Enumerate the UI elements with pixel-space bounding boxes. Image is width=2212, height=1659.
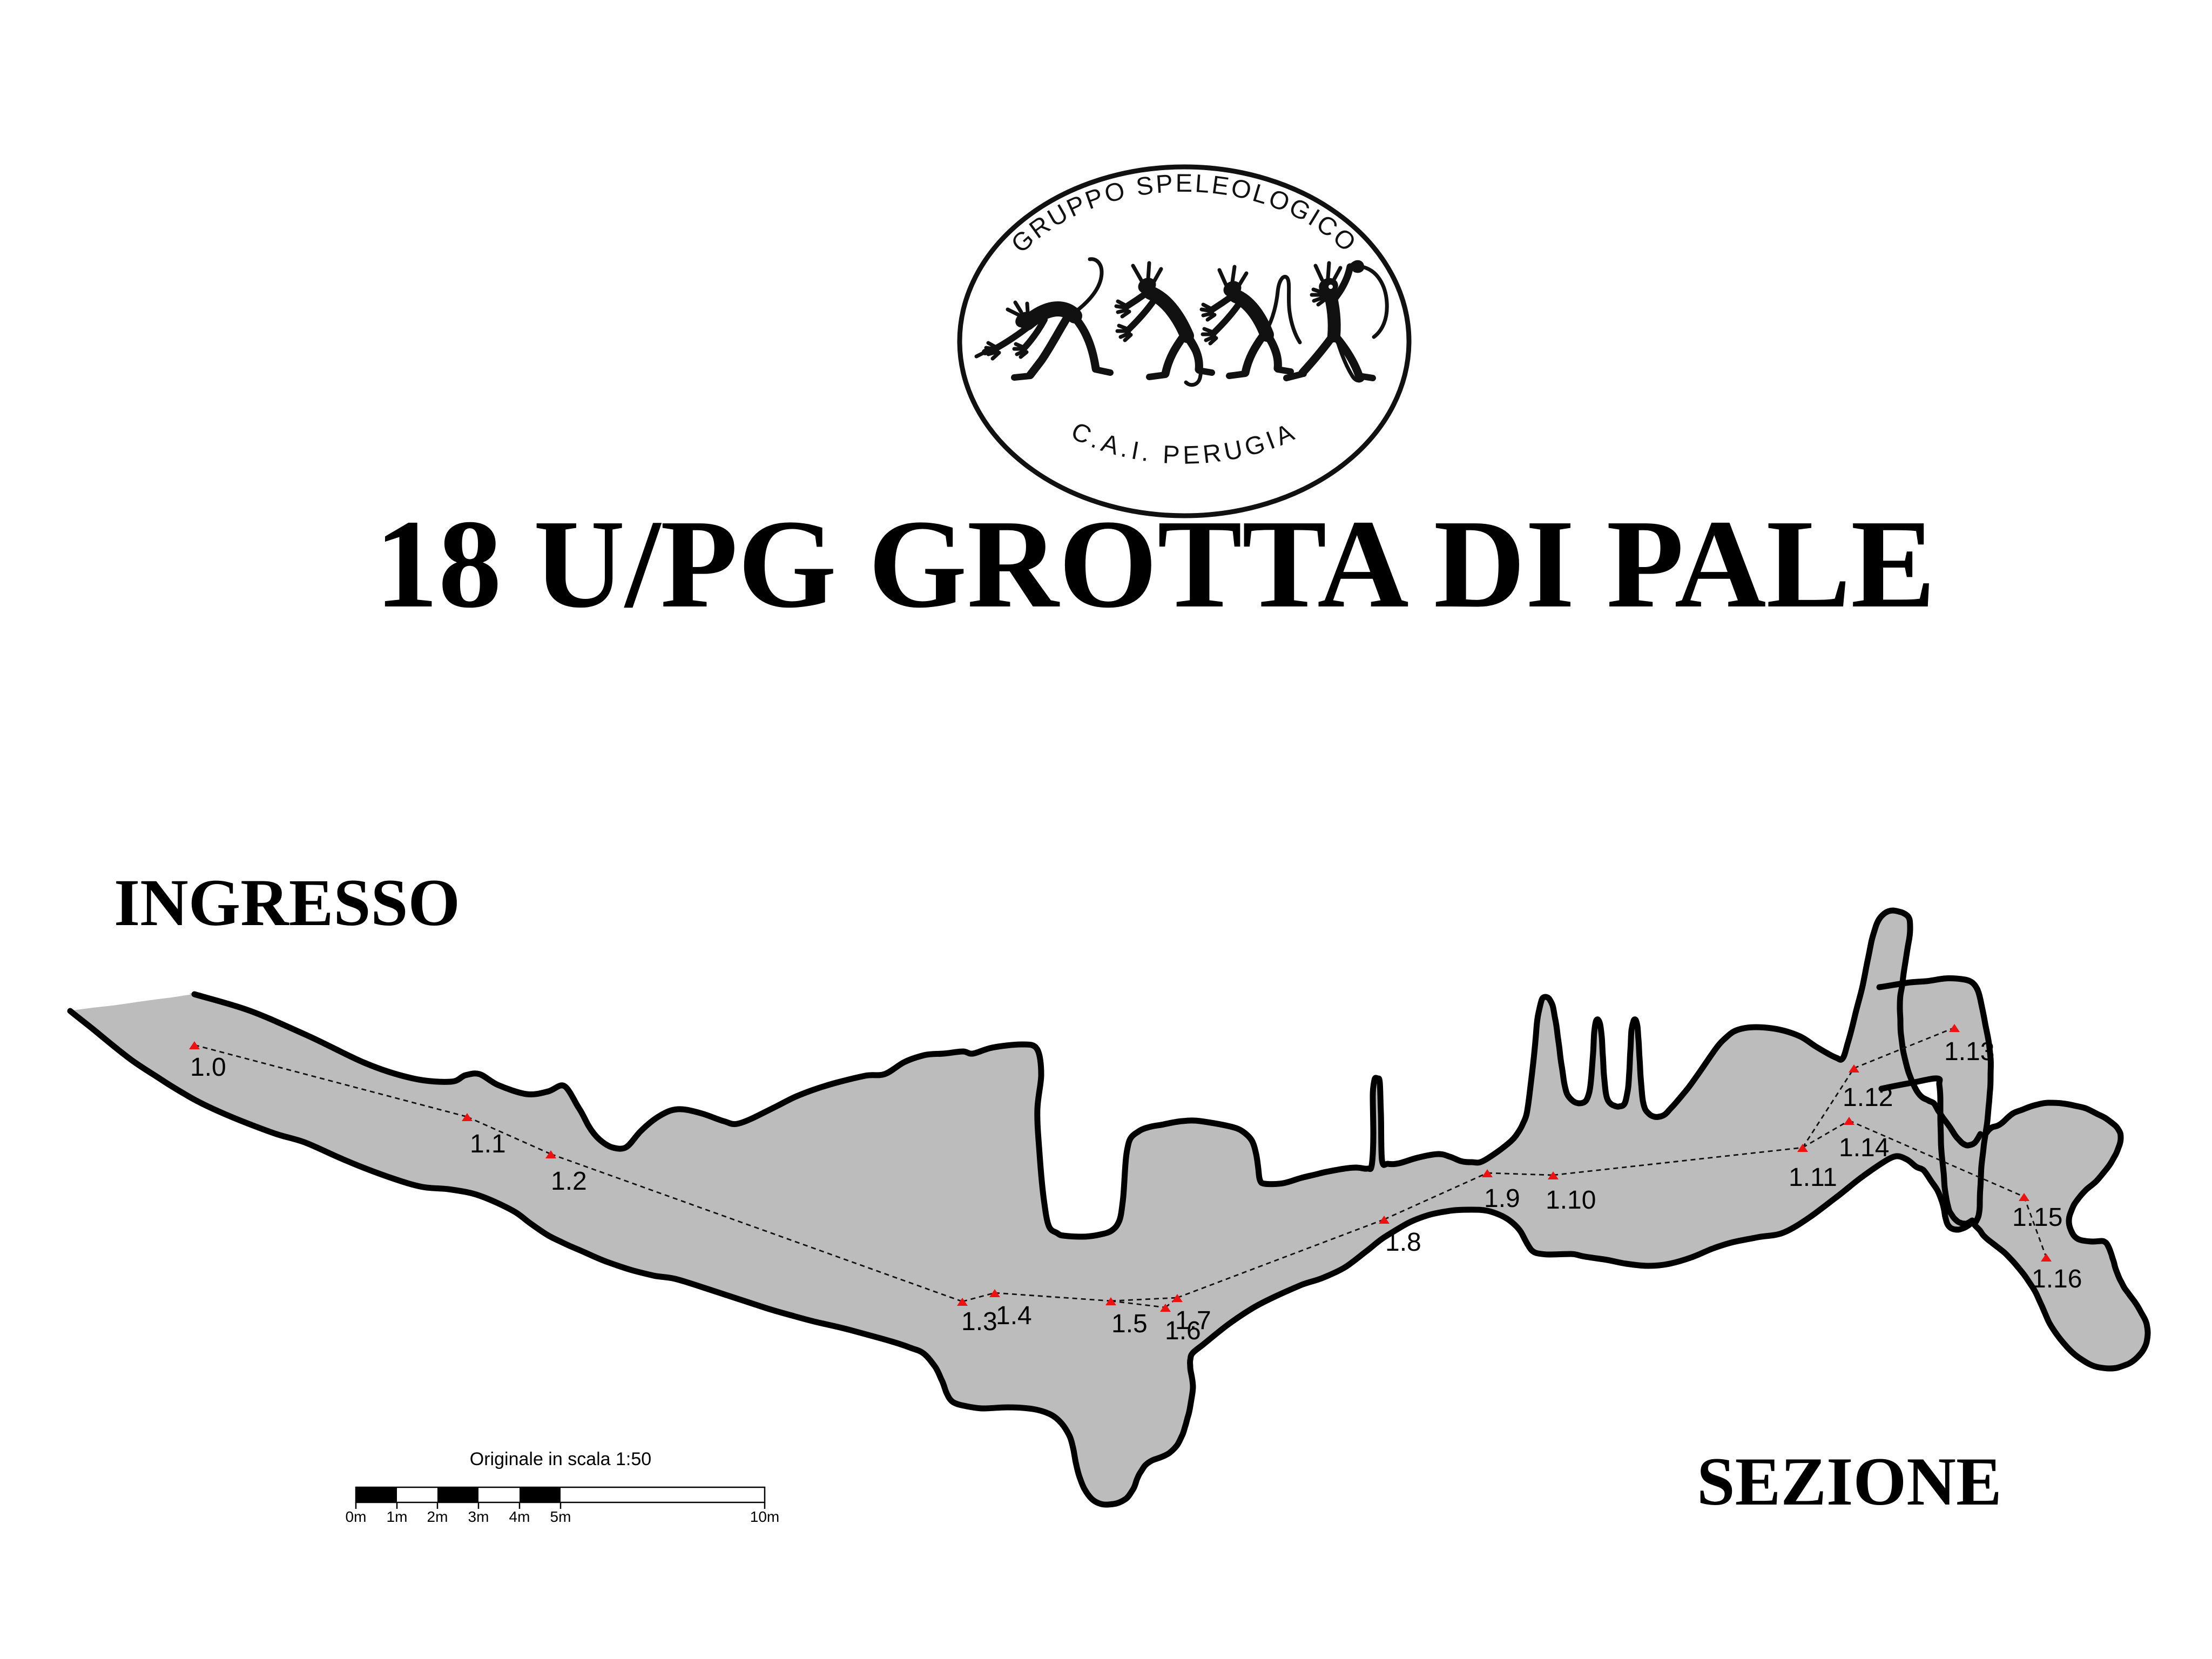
svg-text:10m: 10m [750,1508,779,1525]
svg-text:1.1: 1.1 [470,1130,506,1158]
svg-text:SEZIONE: SEZIONE [1697,1444,2002,1520]
svg-text:Originale in scala 1:50: Originale in scala 1:50 [470,1449,651,1469]
svg-text:1.5: 1.5 [1111,1310,1148,1338]
svg-text:INGRESSO: INGRESSO [114,866,460,940]
svg-text:0m: 0m [346,1508,367,1525]
svg-text:3m: 3m [468,1508,489,1525]
svg-text:1.12: 1.12 [1843,1083,1893,1112]
svg-text:1.7: 1.7 [1175,1306,1211,1335]
svg-text:1.4: 1.4 [996,1301,1032,1330]
svg-text:2m: 2m [427,1508,448,1525]
svg-text:1.16: 1.16 [2032,1265,2082,1293]
svg-text:1.0: 1.0 [190,1053,226,1082]
svg-text:1.15: 1.15 [2012,1203,2062,1232]
svg-text:1.8: 1.8 [1385,1228,1421,1257]
svg-text:1.11: 1.11 [1789,1163,1837,1192]
svg-text:1.3: 1.3 [961,1307,997,1336]
svg-text:4m: 4m [509,1508,530,1525]
svg-text:1.2: 1.2 [551,1167,587,1196]
svg-text:5m: 5m [550,1508,571,1525]
svg-text:1.13: 1.13 [1944,1037,1994,1066]
svg-text:1.9: 1.9 [1484,1184,1520,1213]
svg-text:1.14: 1.14 [1839,1134,1889,1162]
svg-text:1.10: 1.10 [1546,1186,1596,1215]
svg-text:1m: 1m [387,1508,408,1525]
